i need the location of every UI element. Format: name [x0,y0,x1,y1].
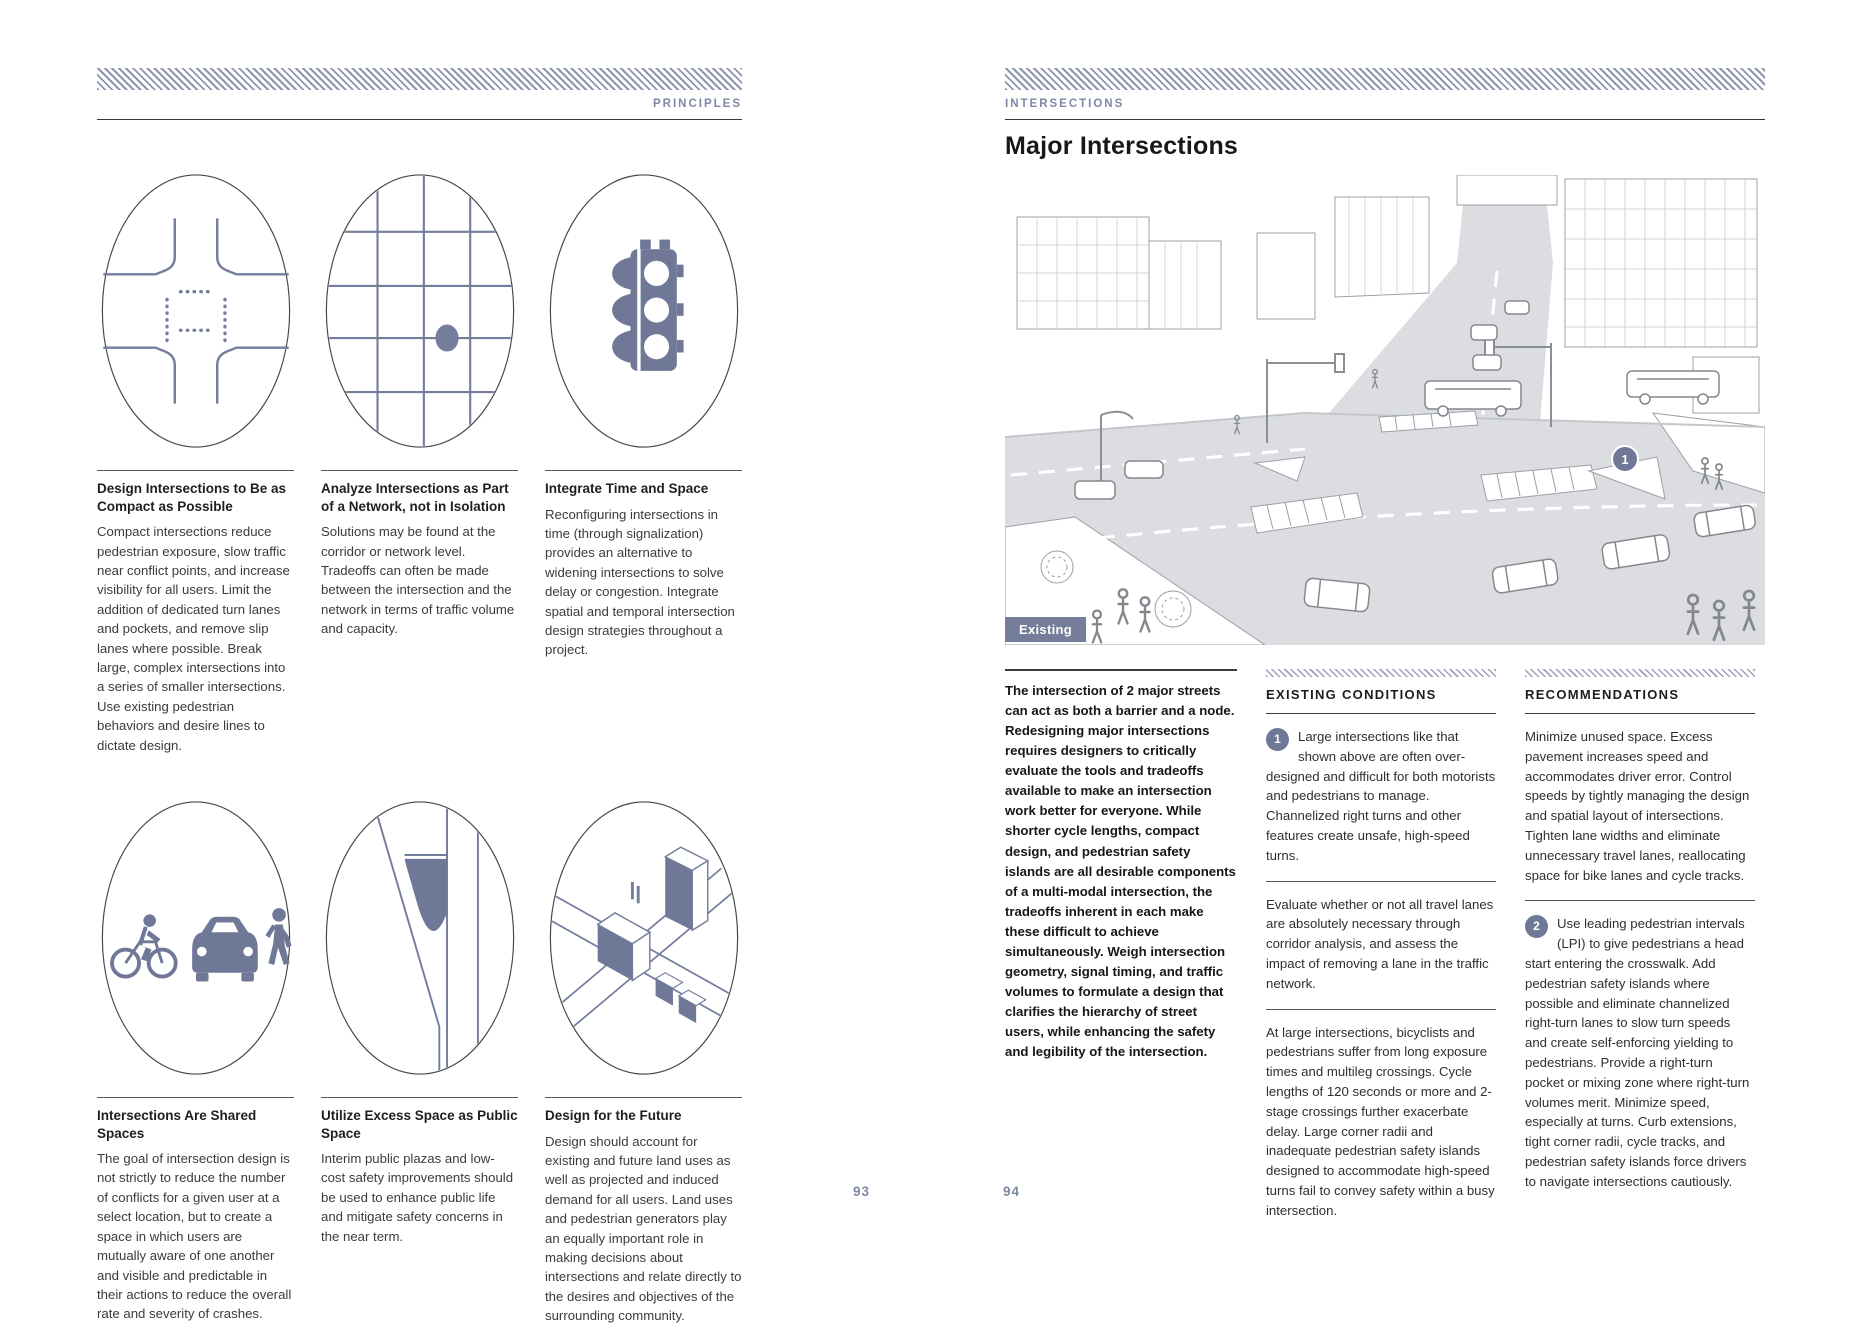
existing-badge: Existing [1005,617,1086,642]
principle-body: The goal of intersection design is not s… [97,1149,294,1324]
hatch-strip [1266,669,1496,677]
item-number-badge: 1 [1266,728,1289,751]
cell-divider [545,470,742,471]
figure-marker-1: 1 [1611,445,1639,473]
cell-divider [97,1097,294,1098]
principle-title: Design Intersections to Be as Compact as… [97,480,294,515]
page-title: Major Intersections [1005,132,1765,161]
principle-body: Compact intersections reduce pedestrian … [97,522,294,755]
principle-cell: Design for the Future Design should acco… [545,799,742,1326]
principle-cell: Analyze Intersections as Part of a Netwo… [321,172,518,755]
multimodal-users-icon [97,799,294,1077]
condition-item: 1Large intersections like that shown abo… [1266,714,1496,882]
principle-cell: Utilize Excess Space as Public Space Int… [321,799,518,1326]
cell-divider [545,1097,742,1098]
cell-divider [97,470,294,471]
column-heading: RECOMMENDATIONS [1525,684,1755,713]
intersection-illustration [1005,175,1765,645]
street-network-icon [321,172,518,450]
principle-body: Reconfiguring intersections in time (thr… [545,505,742,660]
recommendation-item: 2Use leading pedestrian intervals (LPI) … [1525,901,1755,1206]
principle-body: Solutions may be found at the corridor o… [321,522,518,638]
principle-body: Design should account for existing and f… [545,1132,742,1326]
condition-text: At large intersections, bicyclists and p… [1266,1023,1496,1221]
cell-divider [321,470,518,471]
hatch-strip [1525,669,1755,677]
hatch-band [97,68,742,90]
left-page: PRINCIPLES [97,68,742,1326]
recommendation-text: Minimize unused space. Excess pavement i… [1525,727,1755,885]
principle-cell: Intersections Are Shared Spaces The goal… [97,799,294,1326]
right-page: INTERSECTIONS Major Intersections [1005,68,1765,1236]
principle-title: Utilize Excess Space as Public Space [321,1107,518,1142]
condition-item: Evaluate whether or not all travel lanes… [1266,882,1496,1010]
header-divider [1005,119,1765,120]
cell-divider [321,1097,518,1098]
section-kicker: INTERSECTIONS [1005,98,1124,110]
principle-title: Intersections Are Shared Spaces [97,1107,294,1142]
intro-column: The intersection of 2 major streets can … [1005,669,1237,1236]
page-number-right: 94 [1003,1184,1020,1199]
page-number-left: 93 [853,1184,870,1199]
principle-cell: Integrate Time and Space Reconfiguring i… [545,172,742,755]
intro-paragraph: The intersection of 2 major streets can … [1005,681,1237,1062]
section-kicker: PRINCIPLES [653,98,742,110]
principle-title: Integrate Time and Space [545,480,742,498]
condition-text: Large intersections like that shown abov… [1266,729,1495,863]
intersection-figure: 1 Existing [1005,175,1765,645]
principle-title: Design for the Future [545,1107,742,1125]
item-number-badge: 2 [1525,915,1548,938]
condition-text: Evaluate whether or not all travel lanes… [1266,895,1496,994]
recommendation-text: Use leading pedestrian intervals (LPI) t… [1525,916,1749,1188]
public-plaza-icon [321,799,518,1077]
columns: The intersection of 2 major streets can … [1005,669,1765,1236]
principle-cell: Design Intersections to Be as Compact as… [97,172,294,755]
hatch-band [1005,68,1765,90]
principles-grid: Design Intersections to Be as Compact as… [97,172,742,1326]
recommendations-column: RECOMMENDATIONS Minimize unused space. E… [1525,669,1755,1236]
compact-intersection-icon [97,172,294,450]
column-heading: EXISTING CONDITIONS [1266,684,1496,713]
traffic-signal-icon [545,172,742,450]
isometric-city-icon [545,799,742,1077]
column-divider [1005,669,1237,671]
condition-item: At large intersections, bicyclists and p… [1266,1010,1496,1236]
principle-body: Interim public plazas and low-cost safet… [321,1149,518,1246]
header-divider [97,119,742,120]
principle-title: Analyze Intersections as Part of a Netwo… [321,480,518,515]
existing-conditions-column: EXISTING CONDITIONS 1Large intersections… [1266,669,1496,1236]
recommendation-item: Minimize unused space. Excess pavement i… [1525,714,1755,901]
